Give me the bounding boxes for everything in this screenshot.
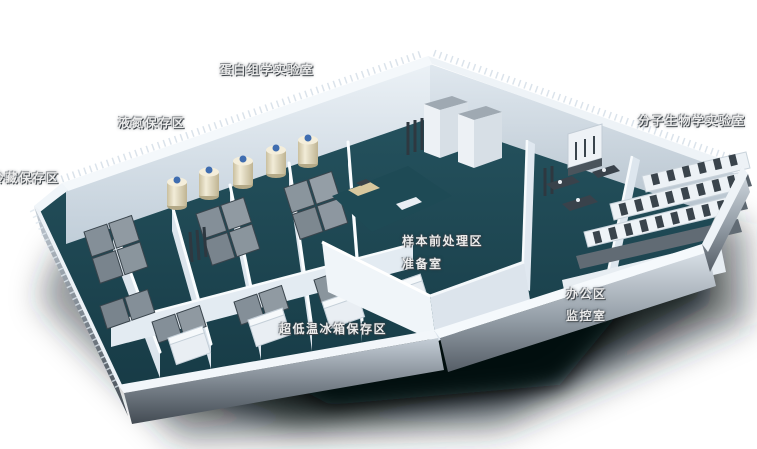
label-monitoring-room: 监控室 — [566, 307, 607, 324]
label-molecular-biology-lab: 分子生物学实验室 — [638, 112, 746, 129]
label-proteomics-lab: 蛋白组学实验室 — [220, 61, 315, 78]
floorplan-render — [0, 0, 757, 449]
label-office-area: 办公区 — [566, 285, 607, 302]
label-ult-freezer-area: 超低温冰箱保存区 — [279, 320, 387, 337]
label-prep-room: 准备室 — [402, 255, 443, 272]
lab-3d-floorplan: 蛋白组学实验室 液氮保存区 冷藏保存区 分子生物学实验室 样本前处理区 准备室 … — [0, 0, 757, 449]
label-liquid-nitrogen-area: 液氮保存区 — [118, 114, 186, 131]
label-cold-storage-area: 冷藏保存区 — [0, 169, 60, 186]
label-sample-pretreatment: 样本前处理区 — [402, 232, 483, 249]
